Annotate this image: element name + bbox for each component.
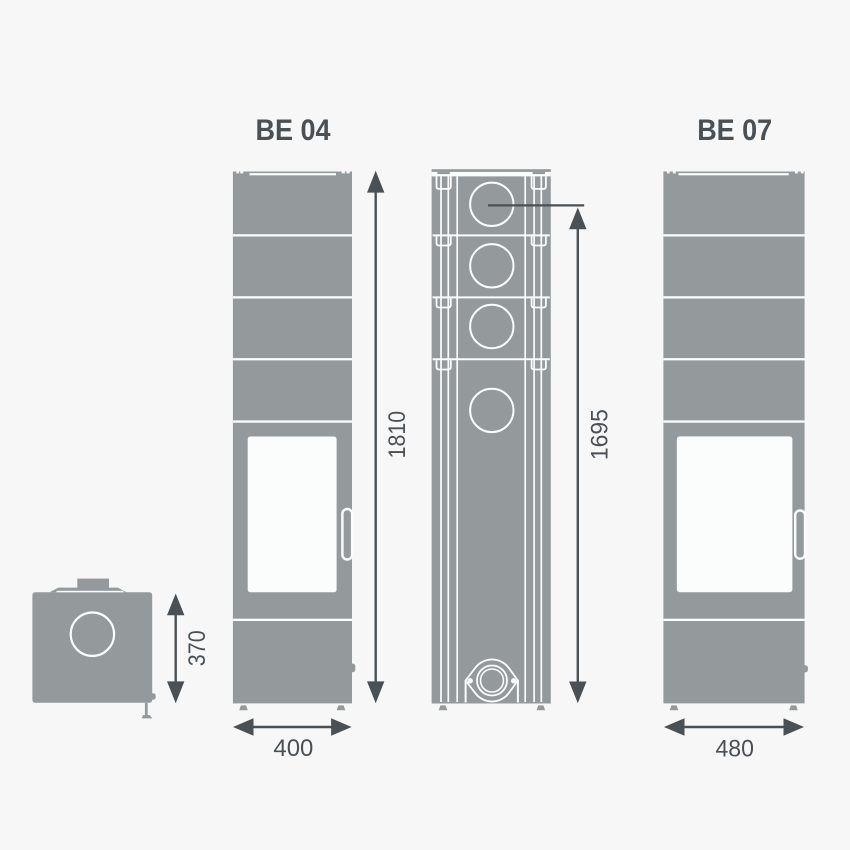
svg-text:1810: 1810: [384, 411, 411, 459]
svg-text:400: 400: [273, 735, 313, 762]
svg-text:1695: 1695: [587, 409, 614, 460]
svg-text:480: 480: [715, 735, 754, 762]
svg-text:BE 07: BE 07: [697, 114, 772, 147]
svg-text:370: 370: [184, 630, 211, 666]
svg-text:BE 04: BE 04: [256, 114, 331, 147]
